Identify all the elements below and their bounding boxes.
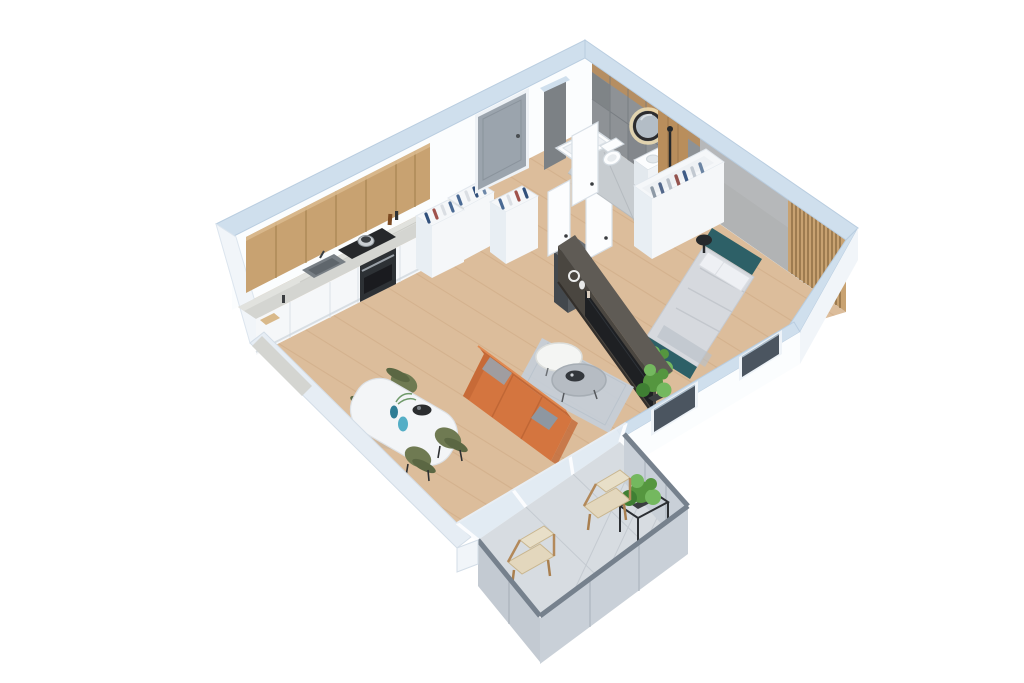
bathroom-door-open bbox=[572, 122, 598, 206]
door-handle bbox=[516, 134, 520, 138]
serving-tray bbox=[566, 371, 585, 382]
decor-vase bbox=[579, 281, 585, 290]
bathroom-partition-wall bbox=[540, 76, 570, 170]
blue-vase bbox=[398, 417, 408, 432]
floorplan-render bbox=[0, 0, 1024, 683]
apartment-floorplan-scene bbox=[0, 0, 1024, 683]
dark-tray bbox=[413, 405, 432, 416]
blue-vase bbox=[390, 406, 398, 419]
wood-floor bbox=[15, 0, 865, 640]
